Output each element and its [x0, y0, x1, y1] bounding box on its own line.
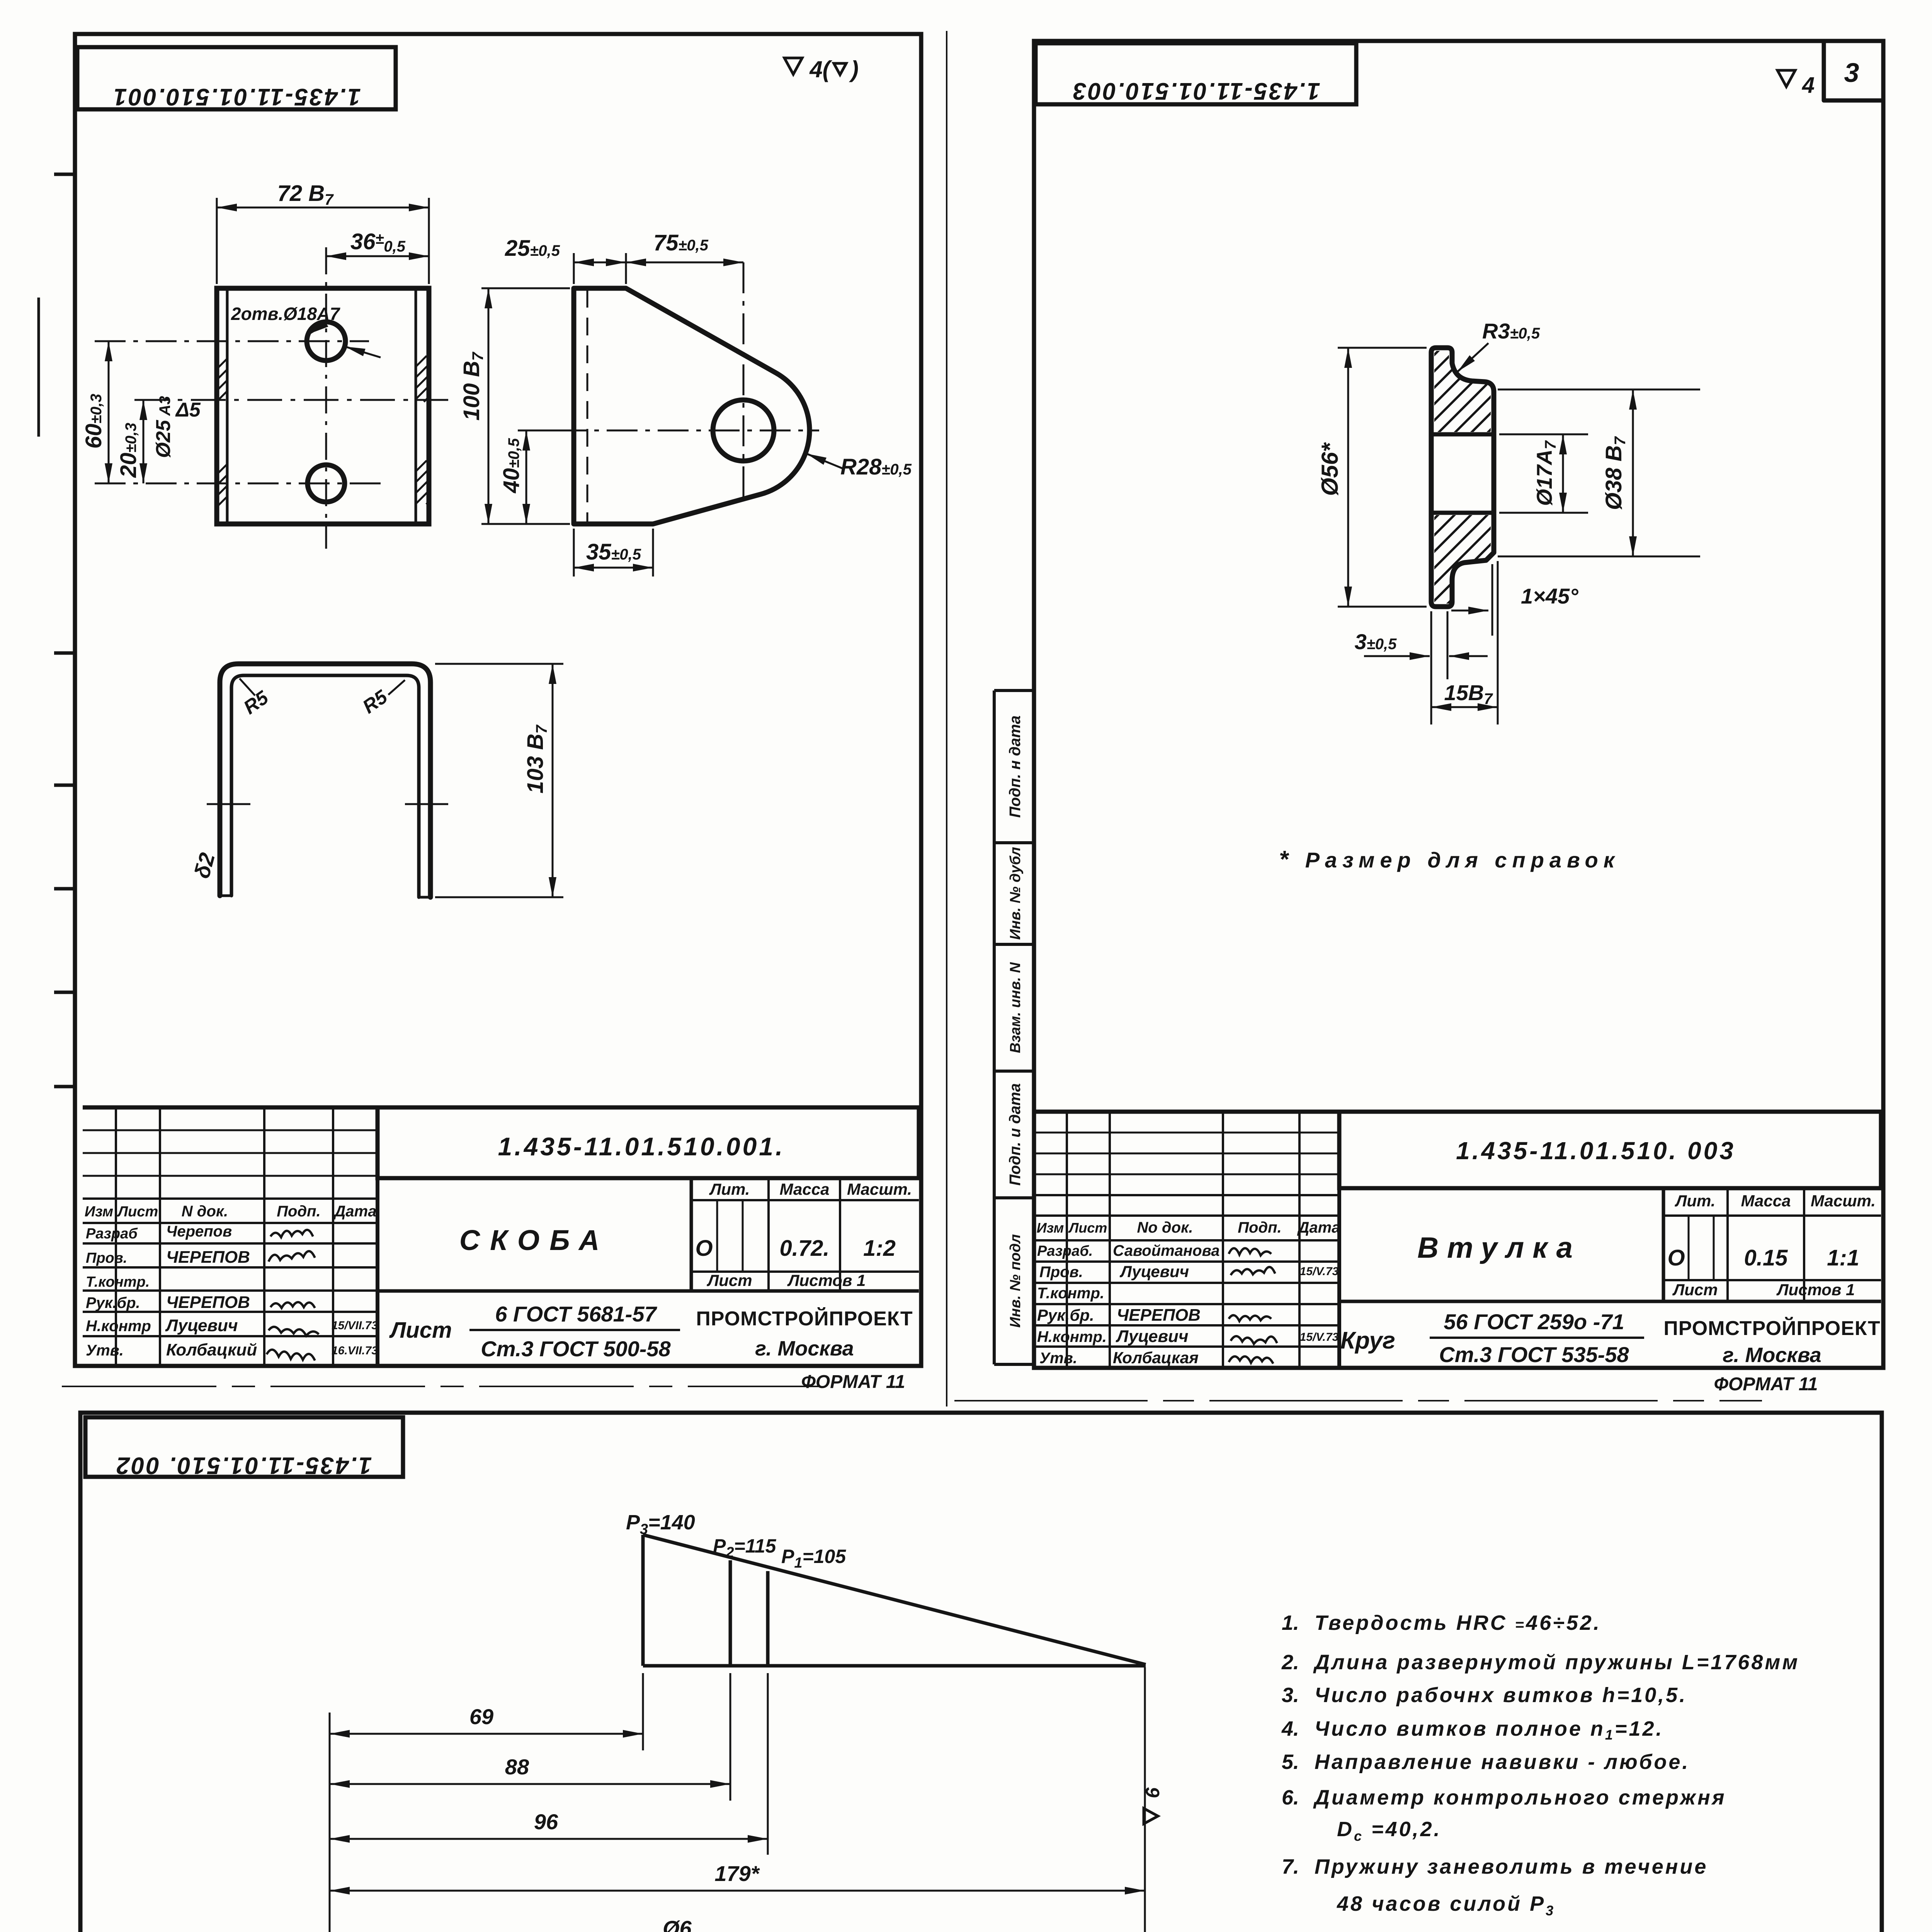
svg-text:Т.контр.: Т.контр. [1037, 1285, 1104, 1302]
svg-text:Подп. и дата: Подп. и дата [1007, 1083, 1024, 1186]
svg-text:1×45°: 1×45° [1521, 584, 1578, 608]
svg-text:Подп.: Подп. [1238, 1219, 1281, 1236]
svg-text:Луцевич: Луцевич [1116, 1327, 1189, 1346]
svg-text:Масшт.: Масшт. [847, 1180, 912, 1198]
svg-text:Дата: Дата [333, 1203, 377, 1220]
svg-text:ПРОМСТРОЙПРОЕКТ: ПРОМСТРОЙПРОЕКТ [1663, 1317, 1880, 1340]
svg-text:Инв. № дубл: Инв. № дубл [1007, 847, 1024, 940]
svg-text:6.: 6. [1282, 1786, 1299, 1809]
svg-text:1.435-11.01.510. 003: 1.435-11.01.510. 003 [1456, 1137, 1736, 1165]
svg-text:Н.контр: Н.контр [86, 1318, 151, 1335]
svg-text:3.: 3. [1282, 1684, 1299, 1707]
svg-text:48 часов силой P3: 48 часов силой P3 [1337, 1892, 1555, 1918]
svg-text:4.: 4. [1281, 1717, 1299, 1740]
svg-text:Разраб.: Разраб. [1037, 1243, 1093, 1259]
svg-text:Длина развернутой пружины L=17: Длина развернутой пружины L=1768мм [1313, 1651, 1799, 1674]
svg-text:Масшт.: Масшт. [1811, 1192, 1876, 1210]
svg-text:Утв.: Утв. [1039, 1350, 1077, 1367]
svg-text:Колбацкий: Колбацкий [166, 1340, 257, 1359]
svg-text:1.435-11.01.510. 002: 1.435-11.01.510. 002 [115, 1452, 372, 1479]
svg-text:1:2: 1:2 [863, 1236, 896, 1261]
svg-text:Лист: Лист [117, 1204, 158, 1220]
svg-text:* Размер для справок: * Размер для справок [1279, 846, 1620, 873]
svg-text:15/V.73: 15/V.73 [1300, 1265, 1339, 1278]
svg-text:Круг: Круг [1340, 1327, 1395, 1354]
svg-text:ПРОМСТРОЙПРОЕКТ: ПРОМСТРОЙПРОЕКТ [696, 1307, 913, 1330]
svg-text:О: О [1667, 1245, 1685, 1270]
svg-text:Ст.3 ГОСТ 500-58: Ст.3 ГОСТ 500-58 [481, 1337, 671, 1361]
svg-text:Колбацкая: Колбацкая [1113, 1349, 1199, 1367]
svg-text:Дата: Дата [1297, 1219, 1340, 1236]
svg-text:Разраб: Разраб [86, 1226, 138, 1242]
svg-text:ЧЕРЕПОВ: ЧЕРЕПОВ [166, 1248, 250, 1267]
svg-text:88: 88 [505, 1755, 529, 1779]
svg-text:6: 6 [1142, 1787, 1163, 1798]
svg-text:15/VII.73: 15/VII.73 [332, 1319, 378, 1332]
svg-text:Δ5: Δ5 [175, 399, 201, 421]
svg-text:5.: 5. [1282, 1750, 1299, 1774]
svg-text:1:1: 1:1 [1827, 1245, 1859, 1270]
svg-text:0.15: 0.15 [1744, 1245, 1788, 1270]
svg-text:Листов 1: Листов 1 [1776, 1281, 1855, 1299]
svg-text:P3=140: P3=140 [626, 1511, 695, 1537]
svg-text:Рук.бр.: Рук.бр. [1037, 1306, 1094, 1324]
svg-text:Взам. инв. N: Взам. инв. N [1007, 962, 1024, 1053]
svg-text:N док.: N док. [182, 1203, 228, 1220]
svg-text:ЧЕРЕПОВ: ЧЕРЕПОВ [166, 1293, 250, 1312]
svg-text:Изм: Изм [1037, 1220, 1064, 1236]
svg-text:Ø6: Ø6 [663, 1916, 692, 1932]
svg-text:56 ГОСТ 259о -71: 56 ГОСТ 259о -71 [1444, 1310, 1624, 1334]
svg-text:Масса: Масса [780, 1180, 830, 1198]
svg-text:Подп.: Подп. [277, 1203, 320, 1220]
svg-text:Диаметр контрольного стержня: Диаметр контрольного стержня [1313, 1786, 1726, 1809]
svg-text:Лист: Лист [706, 1271, 752, 1289]
svg-text:Ø38 В7: Ø38 В7 [1601, 436, 1629, 510]
svg-text:Подп. н дата: Подп. н дата [1007, 716, 1024, 818]
svg-text:6 ГОСТ 5681-57: 6 ГОСТ 5681-57 [495, 1302, 657, 1326]
svg-text:2.: 2. [1281, 1651, 1299, 1674]
svg-text:1.435-11.01.510.003: 1.435-11.01.510.003 [1071, 78, 1320, 104]
svg-text:Пружину заневолить в течение: Пружину заневолить в течение [1315, 1855, 1708, 1878]
svg-text:Рук.бр.: Рук.бр. [86, 1294, 140, 1311]
svg-text:7.: 7. [1282, 1855, 1299, 1878]
svg-text:Инв. № подл: Инв. № подл [1007, 1234, 1024, 1328]
svg-text:2отв.Ø18А7: 2отв.Ø18А7 [231, 304, 340, 324]
svg-text:г. Москва: г. Москва [755, 1337, 854, 1360]
svg-text:Пров.: Пров. [1039, 1264, 1083, 1281]
svg-text:15/V.73: 15/V.73 [1300, 1331, 1339, 1344]
svg-text:0.72.: 0.72. [780, 1236, 830, 1261]
svg-text:ФОРМАТ 11: ФОРМАТ 11 [1714, 1374, 1818, 1395]
svg-text:Число рабочнх витков h=10,5: Число рабочнх витков h=10,5. [1315, 1684, 1687, 1707]
svg-text:4: 4 [1802, 73, 1815, 98]
svg-text:179*: 179* [714, 1861, 760, 1886]
svg-text:No док.: No док. [1137, 1219, 1193, 1236]
svg-text:ЧЕРЕПОВ: ЧЕРЕПОВ [1117, 1306, 1201, 1325]
svg-text:Изм: Изм [85, 1204, 113, 1220]
svg-text:1.435-11.01.510.001: 1.435-11.01.510.001 [112, 83, 361, 110]
svg-text:Н.контр.: Н.контр. [1037, 1328, 1107, 1345]
svg-text:Масса: Масса [1741, 1192, 1791, 1210]
svg-text:Лист: Лист [1672, 1281, 1718, 1299]
svg-text:Ø17А7: Ø17А7 [1532, 440, 1559, 506]
svg-text:Направление навивки - любое.: Направление навивки - любое. [1315, 1750, 1690, 1774]
svg-text:100 В7: 100 В7 [459, 352, 486, 421]
svg-text:Ст.3 ГОСТ 535-58: Ст.3 ГОСТ 535-58 [1439, 1342, 1629, 1367]
svg-text:О: О [695, 1236, 713, 1261]
svg-text:Твердость HRC =46÷52.: Твердость HRC =46÷52. [1315, 1611, 1601, 1634]
svg-text:3: 3 [1844, 58, 1859, 88]
svg-text:Черепов: Черепов [166, 1223, 232, 1240]
svg-text:Утв.: Утв. [86, 1342, 124, 1359]
svg-text:103 В7: 103 В7 [523, 724, 550, 794]
svg-text:г. Москва: г. Москва [1723, 1344, 1821, 1367]
svg-text:ФОРМАТ 11: ФОРМАТ 11 [801, 1372, 905, 1392]
svg-text:СКОБА: СКОБА [459, 1224, 610, 1256]
svg-text:Лит.: Лит. [1675, 1192, 1716, 1210]
svg-text:Лист: Лист [389, 1318, 452, 1343]
svg-text:Лит.: Лит. [709, 1180, 750, 1198]
svg-text:Луцевич: Луцевич [165, 1316, 238, 1335]
svg-text:69: 69 [469, 1704, 493, 1729]
svg-text:16.VII.73: 16.VII.73 [332, 1344, 378, 1357]
svg-text:Dс =40,2.: Dс =40,2. [1337, 1818, 1442, 1844]
svg-text:Пров.: Пров. [86, 1250, 127, 1266]
svg-text:Т.контр.: Т.контр. [86, 1274, 150, 1290]
svg-text:Луцевич: Луцевич [1119, 1262, 1189, 1281]
svg-text:Ø56*: Ø56* [1317, 442, 1343, 496]
svg-text:1.: 1. [1282, 1611, 1299, 1634]
svg-text:Лист: Лист [1068, 1220, 1107, 1236]
svg-text:Савойтанова: Савойтанова [1113, 1242, 1219, 1259]
svg-text:1.435-11.01.510.001.: 1.435-11.01.510.001. [498, 1132, 785, 1161]
svg-text:96: 96 [534, 1810, 558, 1834]
svg-text:Листов 1: Листов 1 [787, 1271, 866, 1289]
svg-text:Втулка: Втулка [1417, 1231, 1581, 1264]
svg-text:4(: 4( [809, 56, 832, 82]
